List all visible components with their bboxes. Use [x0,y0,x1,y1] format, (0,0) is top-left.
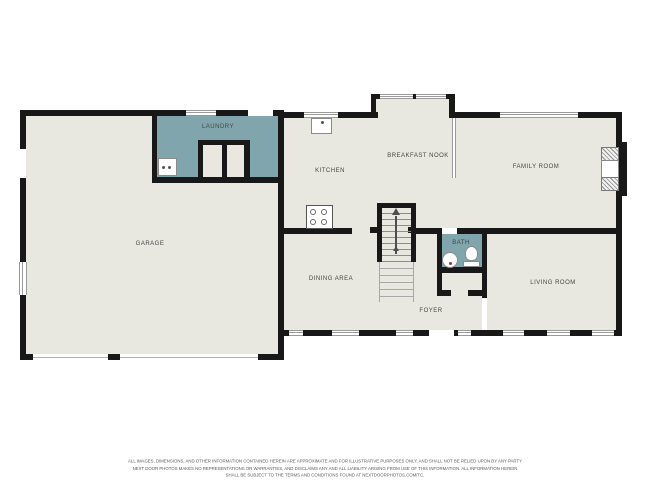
faucet-icon [321,121,324,124]
kitchen-sink-icon [311,118,332,134]
garage-window [19,262,27,295]
living-window-3 [592,330,614,336]
toilet-tank-icon [463,261,480,267]
room-label-garage: GARAGE [100,241,200,247]
stove-icon [306,205,333,229]
wall-garage-left [20,110,26,360]
wall-nook-right [449,94,455,116]
wall-living-top [487,228,622,234]
room-label-kitchen: KITCHEN [280,168,380,174]
wall-laundry-left [152,110,157,183]
stairs-up-arrow-head [392,208,400,215]
wall-garage-right [278,110,284,360]
garage-door-single [33,354,108,360]
nook-window-2 [416,94,446,99]
laundry-back-door-opening [248,110,273,116]
wall-bath-bottom [437,267,487,273]
dining-window-2 [332,330,359,336]
disclaimer: ALL IMAGES, DIMENSIONS, AND OTHER INFORM… [91,459,559,480]
living-window-1 [503,330,524,336]
toilet-bowl-icon [465,246,478,261]
nook-family-partition [452,118,456,178]
room-label-breakfast-nook: BREAKFAST NOOK [368,153,468,159]
family-room-window [500,112,578,118]
family-living-floor [455,112,622,336]
fireplace-hatch-bottom [601,177,619,191]
fireplace-hatch-top [601,147,619,161]
breakfast-nook-bump-floor [374,96,452,118]
foyer-living-opening [482,298,487,330]
room-label-family-room: FAMILY ROOM [486,164,586,170]
room-label-foyer: FOYER [381,308,481,314]
burner-icon [310,219,316,225]
stairs-lower-flight [379,262,414,302]
laundry-closet-door-right [227,145,244,177]
burner-icon [321,219,327,225]
washer-knob-icon [168,166,171,169]
foyer-window-right [458,330,471,336]
disclaimer-line: SHALL BE SUBJECT TO THE TERMS AND CONDIT… [91,473,559,480]
room-label-laundry: LAUNDRY [168,124,268,130]
foyer-window-left [396,330,413,336]
front-door-opening [429,330,454,336]
wall-closet-bottom-left [437,290,451,296]
wall-stair-stub-left [370,227,378,233]
wall-fireplace-outer [618,142,627,196]
burner-icon [321,209,327,215]
disclaimer-line: NEXT DOOR PHOTOS MAKES NO REPRESENTATION… [91,466,559,473]
bath-door-opening [442,228,457,234]
burner-icon [310,209,316,215]
nook-window-1 [380,94,413,99]
room-label-dining-area: DINING AREA [281,276,381,282]
laundry-closet-door-left [203,145,222,177]
floor-plan: GARAGE LAUNDRY KITCHEN BREAKFAST NOOK FA… [0,0,650,488]
garage-door-double [120,354,258,360]
garage-side-door-opening [20,149,26,178]
fireplace-firebox [601,160,619,178]
dining-window-1 [289,330,303,336]
bath-sink-drain-icon [449,262,452,265]
disclaimer-line: ALL IMAGES, DIMENSIONS, AND OTHER INFORM… [91,459,559,466]
living-window-2 [547,330,570,336]
washer-icon [158,158,177,176]
washer-knob-icon [162,166,165,169]
stairs-up-arrow-chevron [393,246,399,251]
room-label-bath: BATH [411,240,511,246]
laundry-window [186,110,216,116]
room-label-living-room: LIVING ROOM [503,280,603,286]
bath-sink-icon [442,252,458,268]
